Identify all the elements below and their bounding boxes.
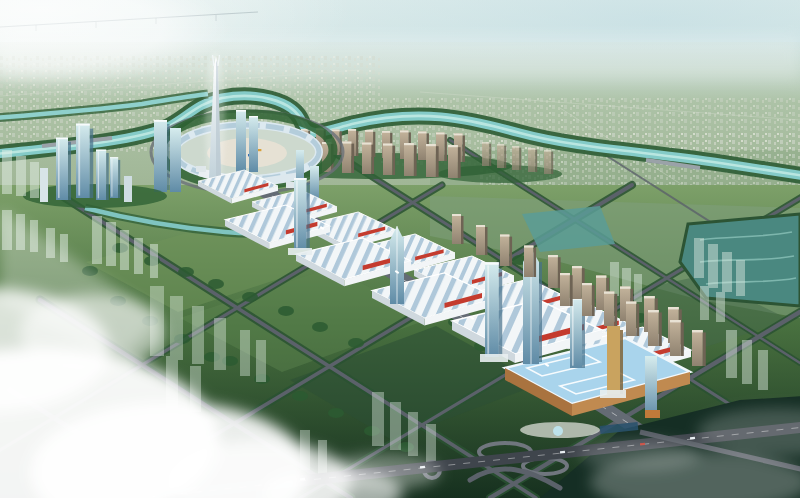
gold-tower bbox=[607, 326, 623, 394]
plaza-west-towers bbox=[154, 120, 181, 192]
aerial-city-rendering bbox=[0, 0, 800, 498]
masterplan-scene bbox=[0, 0, 800, 498]
cbd-midrise bbox=[40, 168, 48, 202]
crystal-tower bbox=[390, 226, 404, 304]
fountain bbox=[553, 426, 563, 436]
